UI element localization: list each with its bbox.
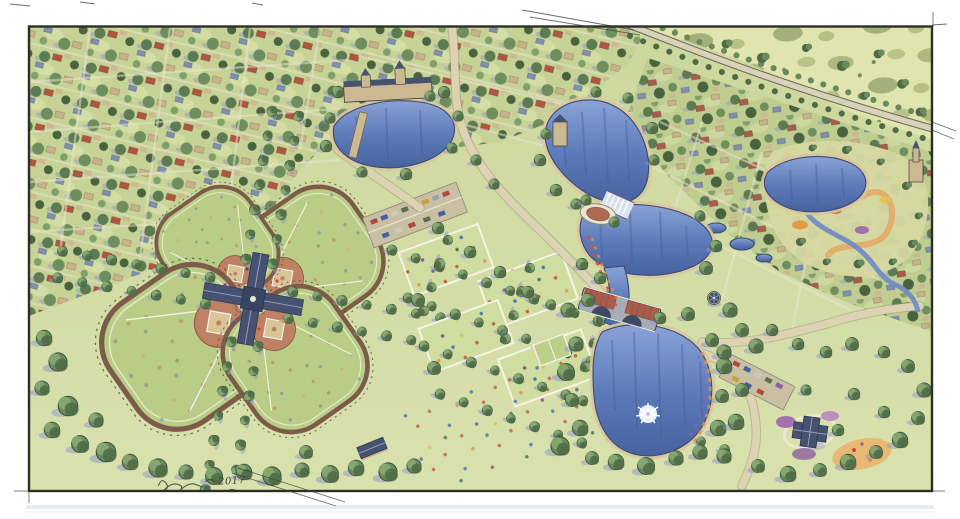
south-pond xyxy=(593,325,712,456)
scan-artifact-line xyxy=(26,505,934,513)
masterplan-illustration: 2017 xyxy=(0,0,960,519)
signature-year: 2017 xyxy=(217,475,246,488)
lakeside-gazebo xyxy=(707,292,721,308)
